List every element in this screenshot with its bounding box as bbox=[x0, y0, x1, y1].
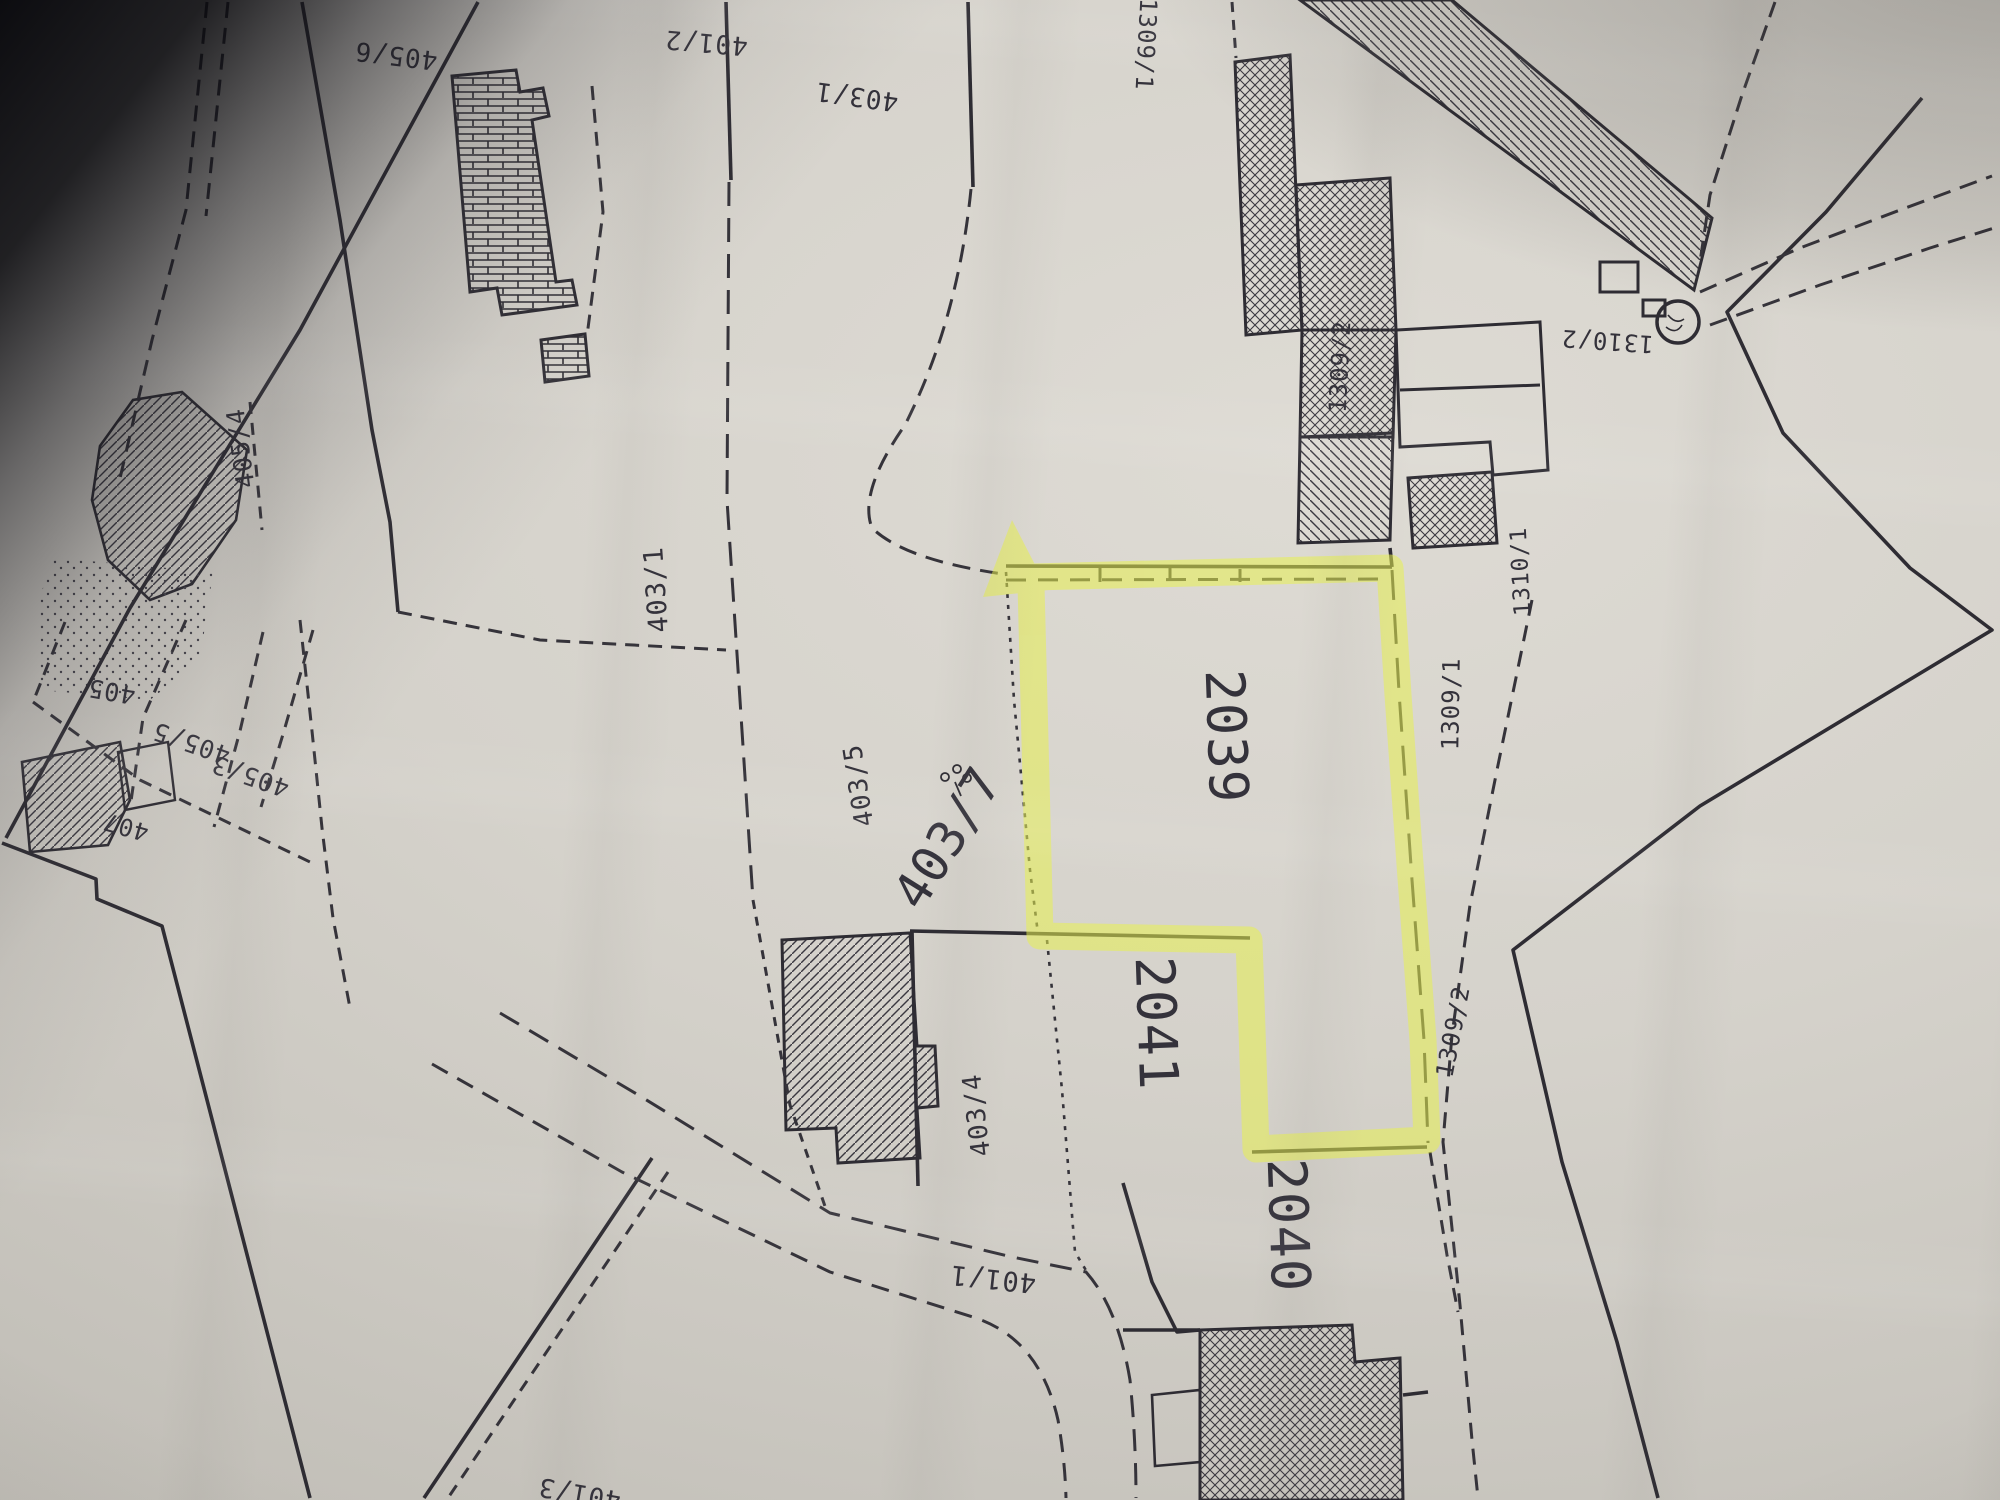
parcel-2039-north bbox=[1006, 548, 1392, 567]
dashed-left-parcel-e bbox=[33, 702, 310, 862]
yellow-highlight bbox=[983, 520, 1427, 1149]
parcel-label-403-7: 403/7 bbox=[882, 757, 1014, 920]
parcel-label-2039: 2039 bbox=[1193, 668, 1261, 804]
parcel-label-401-3: 401/3 bbox=[536, 1471, 623, 1500]
solid-boundaries bbox=[2, 2, 1992, 1498]
dashed-401-3-pair bbox=[448, 1172, 668, 1498]
parcel-label-405-6: 405/6 bbox=[353, 35, 439, 75]
shadow-top-left-corner bbox=[0, 0, 2000, 1500]
parcel-label-2041: 2041 bbox=[1123, 955, 1191, 1091]
boundary-brick-parcel bbox=[302, 2, 398, 612]
map-drawing: 405/6 401/2 403/1 1309/1 405/4 403/1 403… bbox=[0, 0, 2000, 1500]
dashed-2039-east bbox=[1392, 570, 1428, 1143]
parcel-label-401-2: 401/2 bbox=[664, 23, 750, 60]
building-bottom-right bbox=[1200, 1325, 1403, 1500]
building-strip-crosshatch bbox=[1235, 55, 1302, 335]
dashed-path-east bbox=[1443, 600, 1532, 1498]
dashed-2039-top-inner bbox=[1006, 568, 1390, 582]
dashed-boundaries bbox=[33, 2, 1994, 1498]
building-hatched-southwest bbox=[22, 742, 130, 852]
tree-symbol bbox=[941, 765, 971, 796]
dashed-northeast-1 bbox=[1700, 176, 1992, 292]
parcel-label-1309-1-east: 1309/1 bbox=[1436, 657, 1466, 750]
photo-vignette bbox=[0, 0, 2000, 1500]
building-block-diag bbox=[1298, 433, 1393, 543]
highlight-outline-2039 bbox=[1031, 568, 1427, 1149]
parcel-label-1310-2: 1310/2 bbox=[1560, 324, 1654, 358]
parcel-label-407: 407 bbox=[100, 807, 152, 847]
parcel-label-1309-1-top: 1309/1 bbox=[1130, 0, 1163, 91]
well-circle-symbol bbox=[1657, 301, 1699, 343]
paper-texture-overlay bbox=[0, 0, 2000, 1500]
parcel-label-405-5: 405/5 bbox=[149, 716, 234, 770]
dashed-left-parcel-d bbox=[261, 630, 313, 807]
parcel-label-1310-1: 1310/1 bbox=[1506, 526, 1537, 616]
hatched-band-northeast bbox=[1300, 0, 1712, 290]
building-hatched-west bbox=[92, 392, 247, 600]
parcel-label-405: 405 bbox=[85, 673, 137, 710]
dashed-northeast-2 bbox=[1710, 228, 1994, 325]
building-block-crosshatch-2 bbox=[1300, 330, 1396, 437]
dashed-left-parcel-b bbox=[130, 620, 186, 808]
dashed-left-parcel-c bbox=[214, 632, 263, 827]
parcel-label-1309-2-building: 1309/2 bbox=[1324, 320, 1357, 414]
dotted-2041-west bbox=[1047, 940, 1087, 1272]
dashed-road-east-curve bbox=[869, 189, 1003, 574]
building-block-crosshatch-1 bbox=[1296, 178, 1396, 330]
orchard-stipple-area bbox=[38, 558, 213, 700]
parcel-label-403-5: 403/5 bbox=[838, 742, 881, 829]
parcel-label-2040: 2040 bbox=[1255, 1157, 1323, 1293]
dashed-405-4-east bbox=[250, 402, 262, 530]
parcel-label-403-4: 403/4 bbox=[957, 1072, 997, 1158]
parcel-label-403-1-mid: 403/1 bbox=[638, 545, 675, 633]
dashed-road-west-lower bbox=[753, 900, 827, 1212]
road-east-2040-west bbox=[1123, 1183, 1200, 1332]
parcel-label-403-1-top: 403/1 bbox=[814, 75, 901, 116]
building-annex-southwest bbox=[118, 742, 175, 810]
building-small-square bbox=[1600, 262, 1638, 292]
building-annex-bottom bbox=[1152, 1390, 1200, 1466]
dashed-top-left-a bbox=[118, 2, 207, 487]
boundary-bottom-buildings bbox=[1123, 1330, 1428, 1395]
parcel-labels: 405/6 401/2 403/1 1309/1 405/4 403/1 403… bbox=[85, 0, 1654, 1500]
parcel-label-405-4: 405/4 bbox=[221, 406, 261, 490]
dashed-left-parcel-a bbox=[33, 622, 65, 702]
dashed-2040-east bbox=[1430, 1152, 1458, 1312]
cadastral-map-photo: 405/6 401/2 403/1 1309/1 405/4 403/1 403… bbox=[0, 0, 2000, 1500]
building-brick-large bbox=[452, 70, 577, 315]
boundary-401-3 bbox=[424, 1158, 652, 1498]
hatched-buildings bbox=[22, 0, 1712, 1500]
dotted-2039-west bbox=[1006, 572, 1038, 934]
dashed-road401-north bbox=[500, 1013, 1136, 1498]
parcel-label-1309-2-south: 1309/2 bbox=[1431, 983, 1476, 1079]
road-v1-top bbox=[726, 2, 731, 180]
dashed-mid-boundary bbox=[398, 612, 726, 650]
parcel-2041-west bbox=[912, 931, 918, 1186]
dashed-road401-south bbox=[432, 1064, 1066, 1498]
well-circle-scribble bbox=[1666, 315, 1684, 331]
shadow-top-right bbox=[0, 0, 2000, 1500]
road-v2-top bbox=[968, 2, 973, 187]
parcel-label-401-1: 401/1 bbox=[949, 1259, 1038, 1299]
boundary-east-vee bbox=[1513, 98, 1992, 1498]
parcel-2041-north bbox=[910, 931, 1250, 938]
dashed-brick-east bbox=[587, 86, 603, 336]
dashed-north-to-circle bbox=[1700, 2, 1775, 262]
parcel-label-405-3: 405/3 bbox=[208, 749, 293, 803]
highlight-arrowhead bbox=[983, 520, 1048, 597]
building-403-4 bbox=[782, 933, 938, 1163]
building-outline-east bbox=[1396, 322, 1548, 475]
dashed-strip-top bbox=[1232, 2, 1236, 58]
building-tiny-rect bbox=[1643, 300, 1665, 316]
boundary-west bbox=[6, 2, 478, 838]
dashed-road-west bbox=[727, 182, 753, 900]
dashed-top-left-b bbox=[206, 2, 228, 216]
parcel-2040-north bbox=[1252, 1147, 1427, 1152]
building-block-crosshatch-3 bbox=[1408, 472, 1497, 548]
boundary-southwest-stepped bbox=[2, 843, 310, 1498]
dashed-left-parcel-f bbox=[300, 620, 350, 1008]
building-brick-small bbox=[541, 334, 589, 382]
